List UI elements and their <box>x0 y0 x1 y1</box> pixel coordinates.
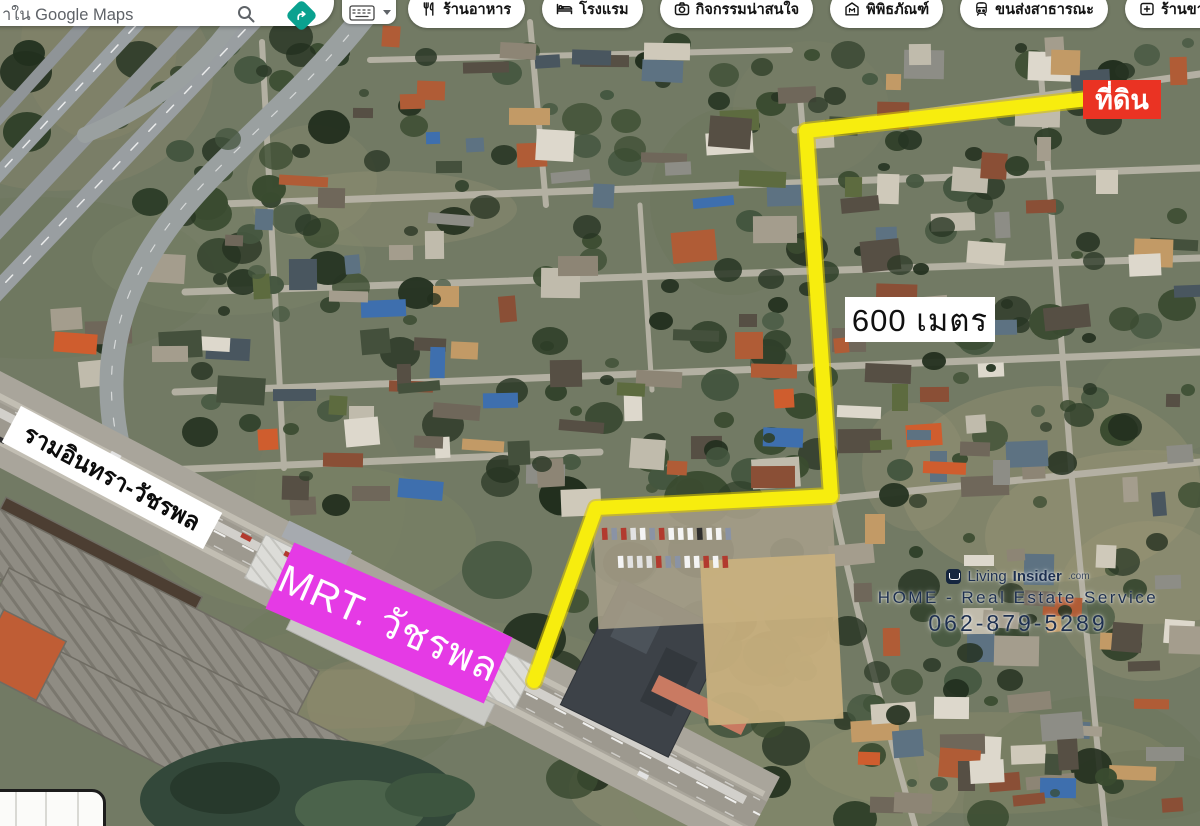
chip-label: ร้านอาหาร <box>443 0 511 21</box>
keyboard-input-button[interactable] <box>342 0 396 24</box>
hotel-icon <box>556 1 573 17</box>
camera-icon <box>674 1 690 17</box>
chip-label: ขนส่งสาธารณะ <box>995 0 1094 21</box>
living-insider-logo-icon <box>946 569 961 584</box>
chip-museums[interactable]: พิพิธภัณฑ์ <box>830 0 943 28</box>
brand-regular: Living <box>967 568 1006 585</box>
chip-label: โรงแรม <box>579 0 628 21</box>
chevron-down-icon <box>383 10 391 15</box>
satellite-imagery <box>0 0 1200 826</box>
chip-label: ร้านขายยา <box>1161 0 1200 21</box>
watermark-phone: 062-879-5289 <box>868 610 1168 637</box>
chip-hotels[interactable]: โรงแรม <box>542 0 642 28</box>
chip-pharmacies[interactable]: ร้านขายยา <box>1125 0 1200 28</box>
brand-suffix: .com <box>1068 571 1090 582</box>
chip-transit[interactable]: ขนส่งสาธารณะ <box>960 0 1108 28</box>
distance-label: 600 เมตร <box>845 297 995 342</box>
land-plot-label: ที่ดิน <box>1083 80 1161 119</box>
pharmacy-icon <box>1139 1 1155 17</box>
google-maps-satellite-view[interactable]: ที่ดิน 600 เมตร MRT. วัชรพล รามอินทรา-วั… <box>0 0 1200 826</box>
chip-label: พิพิธภัณฑ์ <box>866 0 929 21</box>
search-bar[interactable]: าใน Google Maps <box>0 0 334 26</box>
search-input[interactable]: าใน Google Maps <box>2 2 133 28</box>
chip-label: กิจกรรมน่าสนใจ <box>696 0 800 21</box>
brand-bold: Insider <box>1013 568 1062 585</box>
watermark-brand: LivingInsider.com <box>868 568 1168 585</box>
transit-icon <box>974 1 989 17</box>
chip-restaurants[interactable]: ร้านอาหาร <box>408 0 525 28</box>
watermark: LivingInsider.com HOME - Real Estate Ser… <box>868 568 1168 637</box>
map-layer-thumbnail[interactable] <box>0 789 106 826</box>
search-icon[interactable] <box>236 4 256 29</box>
thumbnail-preview <box>0 792 103 826</box>
category-chips: ร้านอาหาร โรงแรม กิจกรรมน่าสนใจ พิพิธภัณ… <box>408 0 1200 28</box>
museum-icon <box>844 1 860 17</box>
chip-attractions[interactable]: กิจกรรมน่าสนใจ <box>660 0 814 28</box>
watermark-service-line: HOME - Real Estate Service <box>868 588 1168 608</box>
restaurant-icon <box>422 1 437 17</box>
